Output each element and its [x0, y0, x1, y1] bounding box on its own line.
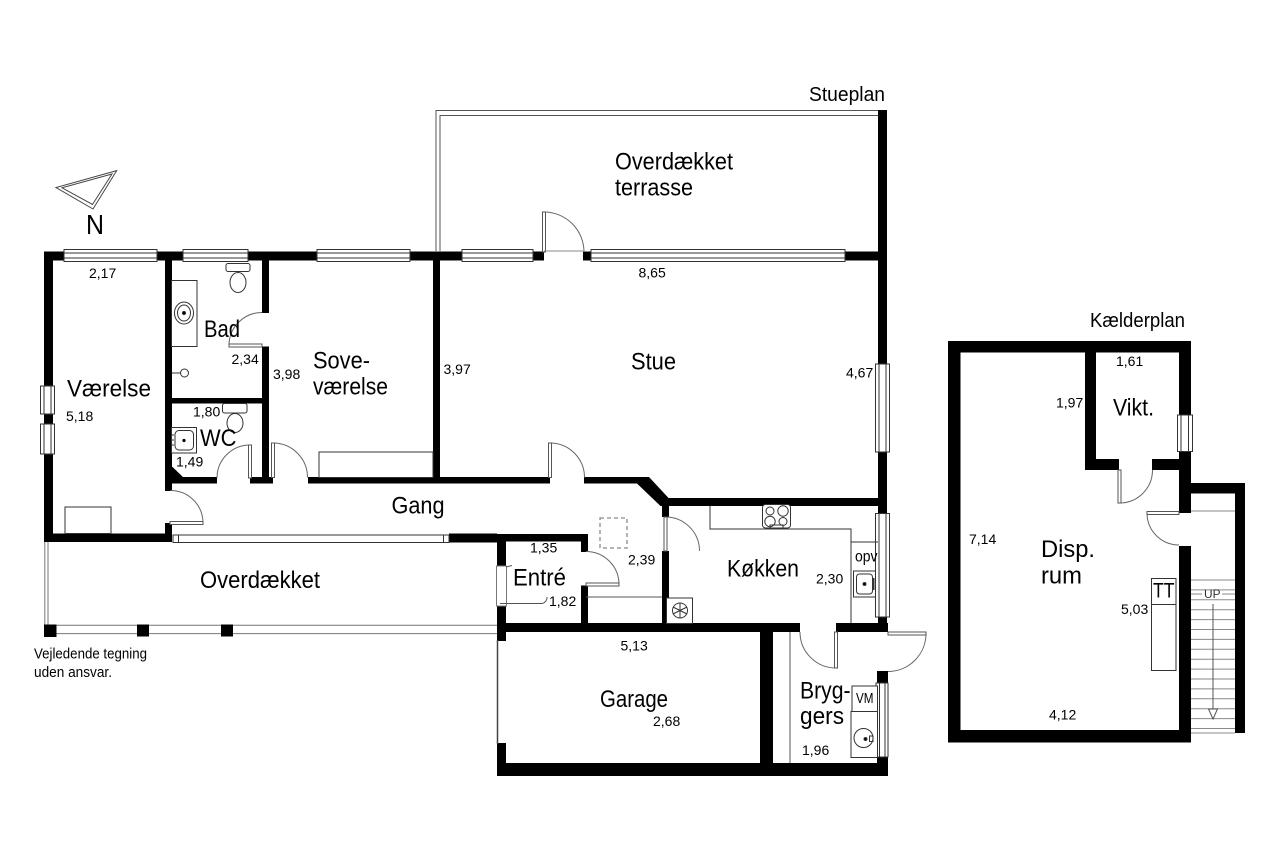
svg-text:N: N [86, 209, 104, 240]
svg-text:Overdækket: Overdækket [615, 149, 733, 176]
svg-text:1,82: 1,82 [549, 593, 576, 609]
svg-text:2,68: 2,68 [653, 713, 680, 729]
svg-text:7,14: 7,14 [969, 531, 996, 547]
svg-text:5,18: 5,18 [66, 408, 93, 424]
svg-text:1,61: 1,61 [1116, 353, 1143, 369]
svg-text:uden ansvar.: uden ansvar. [34, 664, 112, 681]
svg-text:rum: rum [1041, 563, 1082, 590]
svg-text:2,30: 2,30 [816, 571, 843, 587]
svg-text:Bryg-: Bryg- [800, 678, 851, 705]
svg-text:1,97: 1,97 [1056, 395, 1083, 411]
svg-text:1,49: 1,49 [176, 454, 203, 470]
svg-text:WC: WC [200, 425, 237, 452]
svg-text:Vejledende tegning: Vejledende tegning [34, 646, 147, 663]
svg-text:8,65: 8,65 [639, 265, 666, 281]
svg-text:2,17: 2,17 [89, 265, 116, 281]
svg-text:5,13: 5,13 [621, 638, 648, 654]
svg-text:4,12: 4,12 [1049, 707, 1076, 723]
svg-text:5,03: 5,03 [1121, 601, 1148, 617]
svg-text:Garage: Garage [600, 686, 668, 713]
svg-text:Sove-: Sove- [313, 348, 370, 375]
svg-text:3,97: 3,97 [444, 361, 471, 377]
svg-text:1,96: 1,96 [802, 742, 829, 758]
svg-text:Kælderplan: Kælderplan [1090, 310, 1185, 332]
svg-text:2,39: 2,39 [628, 552, 655, 568]
svg-text:Gang: Gang [392, 493, 445, 520]
svg-text:værelse: værelse [313, 374, 388, 401]
svg-text:TT: TT [1153, 580, 1175, 603]
svg-text:Overdækket: Overdækket [200, 567, 320, 594]
svg-text:Køkken: Køkken [727, 556, 799, 583]
svg-text:2,34: 2,34 [232, 351, 259, 367]
svg-text:Stueplan: Stueplan [809, 84, 885, 106]
svg-text:Bad: Bad [204, 316, 240, 343]
svg-text:terrasse: terrasse [615, 175, 693, 202]
svg-text:Stue: Stue [631, 349, 676, 376]
svg-text:Værelse: Værelse [67, 376, 151, 403]
svg-text:UP: UP [1204, 589, 1221, 601]
svg-text:Vikt.: Vikt. [1113, 395, 1154, 422]
svg-text:3,98: 3,98 [273, 366, 300, 382]
svg-text:gers: gers [800, 703, 844, 730]
svg-text:Disp.: Disp. [1041, 536, 1095, 563]
svg-text:1,35: 1,35 [530, 540, 557, 556]
svg-text:1,80: 1,80 [193, 404, 220, 420]
svg-text:VM: VM [856, 691, 874, 707]
svg-text:opv: opv [855, 549, 878, 566]
svg-text:4,67: 4,67 [846, 365, 873, 381]
svg-text:Entré: Entré [513, 565, 566, 592]
